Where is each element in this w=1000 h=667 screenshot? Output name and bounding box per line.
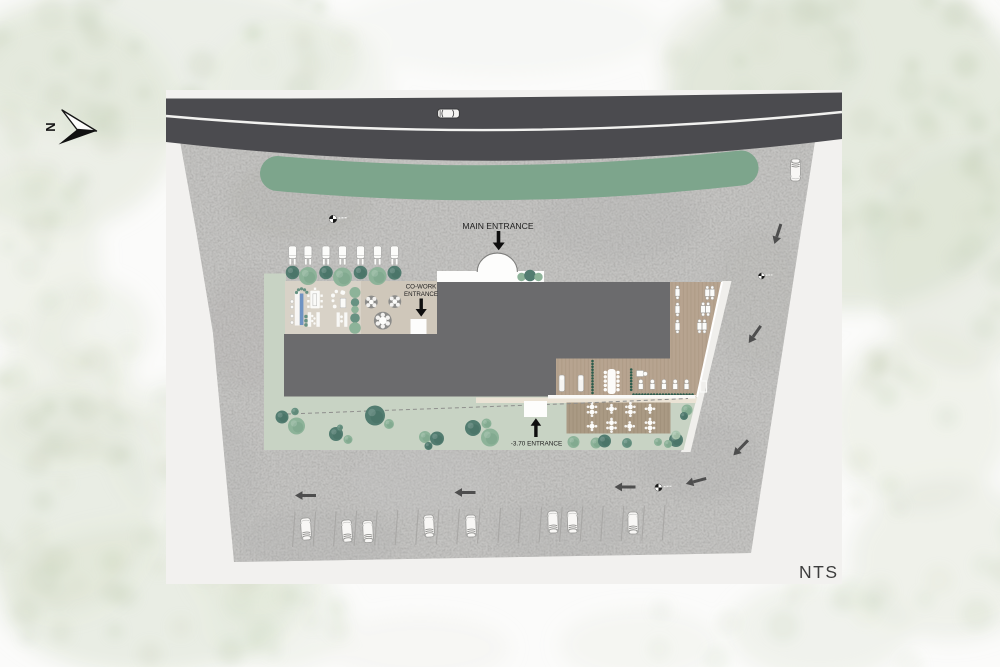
svg-text:N: N bbox=[43, 122, 58, 131]
svg-text:-3.70 ENTRANCE: -3.70 ENTRANCE bbox=[511, 441, 563, 448]
svg-text:ENTRANCE: ENTRANCE bbox=[404, 291, 438, 298]
svg-text:NTS: NTS bbox=[799, 562, 839, 582]
svg-text:CO-WORK: CO-WORK bbox=[406, 284, 437, 291]
svg-text:MAIN ENTRANCE: MAIN ENTRANCE bbox=[462, 221, 533, 231]
